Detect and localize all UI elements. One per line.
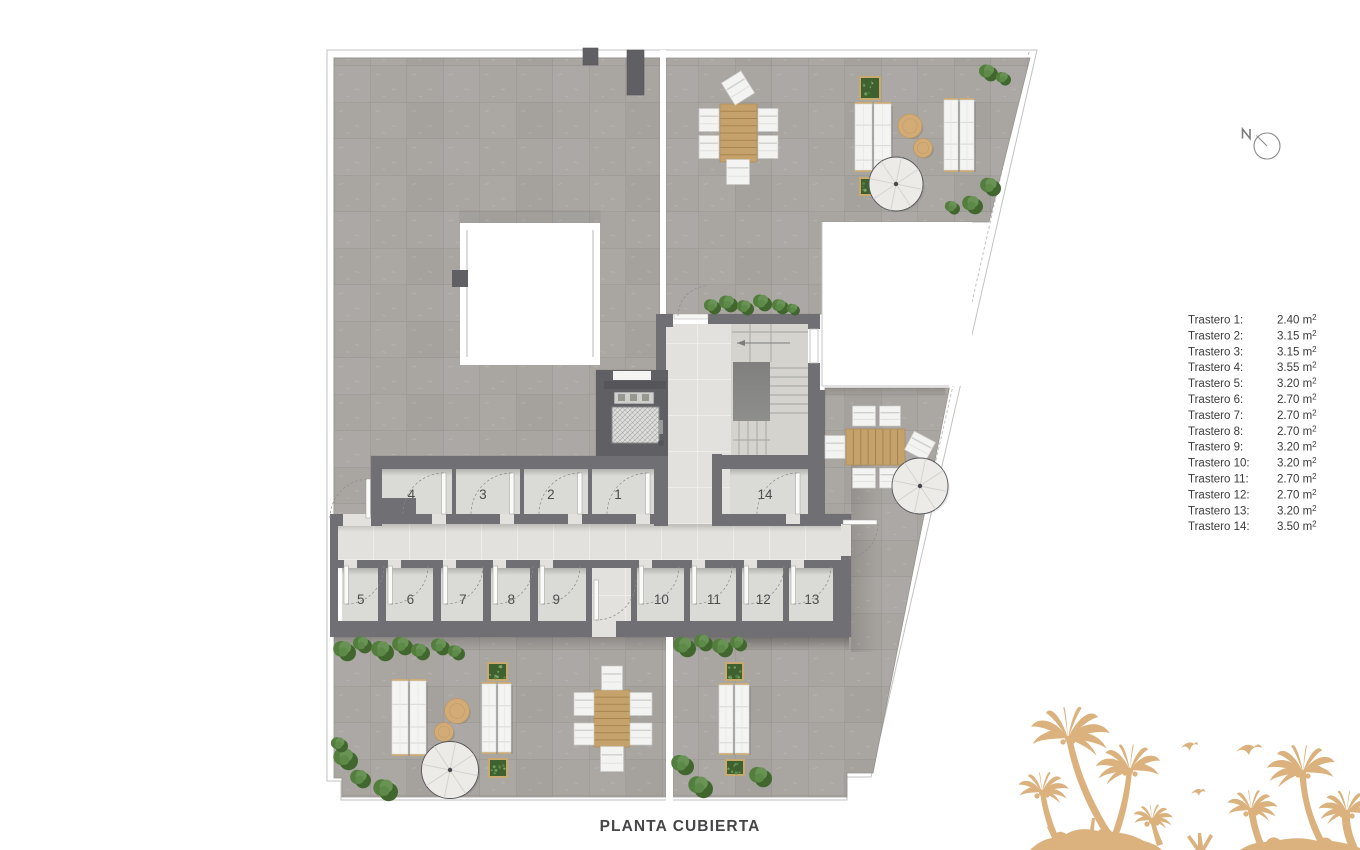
svg-text:13: 13 bbox=[804, 592, 819, 607]
svg-text:3.50 m2: 3.50 m2 bbox=[1277, 520, 1317, 534]
svg-text:Trastero 14:: Trastero 14: bbox=[1188, 521, 1250, 533]
svg-text:2: 2 bbox=[547, 487, 555, 502]
svg-text:3.20 m2: 3.20 m2 bbox=[1277, 377, 1317, 391]
svg-text:7: 7 bbox=[459, 592, 467, 607]
svg-text:Trastero 5:: Trastero 5: bbox=[1188, 378, 1243, 390]
svg-text:PLANTA CUBIERTA: PLANTA CUBIERTA bbox=[600, 818, 761, 835]
svg-text:11: 11 bbox=[707, 592, 721, 607]
svg-text:Trastero 8:: Trastero 8: bbox=[1188, 426, 1243, 438]
svg-text:3.20 m2: 3.20 m2 bbox=[1277, 504, 1317, 518]
svg-text:Trastero 9:: Trastero 9: bbox=[1188, 442, 1243, 454]
svg-text:Trastero 1:: Trastero 1: bbox=[1188, 315, 1243, 327]
svg-text:12: 12 bbox=[756, 592, 771, 607]
svg-text:Trastero 4:: Trastero 4: bbox=[1188, 362, 1243, 374]
svg-text:Trastero 2:: Trastero 2: bbox=[1188, 330, 1243, 342]
svg-text:2.40 m2: 2.40 m2 bbox=[1277, 313, 1317, 327]
svg-text:3.15 m2: 3.15 m2 bbox=[1277, 329, 1317, 343]
svg-text:2.70 m2: 2.70 m2 bbox=[1277, 472, 1317, 486]
svg-text:Trastero 10:: Trastero 10: bbox=[1188, 458, 1250, 470]
svg-text:3: 3 bbox=[479, 487, 487, 502]
svg-text:8: 8 bbox=[508, 592, 516, 607]
svg-text:Trastero 7:: Trastero 7: bbox=[1188, 410, 1243, 422]
svg-text:1: 1 bbox=[614, 487, 622, 502]
svg-text:5: 5 bbox=[357, 592, 365, 607]
svg-text:2.70 m2: 2.70 m2 bbox=[1277, 393, 1317, 407]
svg-text:Trastero 13:: Trastero 13: bbox=[1188, 505, 1250, 517]
svg-text:2.70 m2: 2.70 m2 bbox=[1277, 408, 1317, 422]
svg-text:3.20 m2: 3.20 m2 bbox=[1277, 440, 1317, 454]
svg-text:10: 10 bbox=[654, 592, 669, 607]
svg-text:Trastero 12:: Trastero 12: bbox=[1188, 489, 1250, 501]
svg-text:2.70 m2: 2.70 m2 bbox=[1277, 488, 1317, 502]
svg-text:3.20 m2: 3.20 m2 bbox=[1277, 456, 1317, 470]
svg-text:6: 6 bbox=[407, 592, 415, 607]
svg-text:2.70 m2: 2.70 m2 bbox=[1277, 424, 1317, 438]
svg-text:3.15 m2: 3.15 m2 bbox=[1277, 345, 1317, 359]
svg-text:9: 9 bbox=[552, 592, 560, 607]
svg-text:Trastero 3:: Trastero 3: bbox=[1188, 346, 1243, 358]
svg-text:3.55 m2: 3.55 m2 bbox=[1277, 361, 1317, 375]
svg-text:Trastero 6:: Trastero 6: bbox=[1188, 394, 1243, 406]
svg-text:Trastero 11:: Trastero 11: bbox=[1188, 474, 1249, 486]
